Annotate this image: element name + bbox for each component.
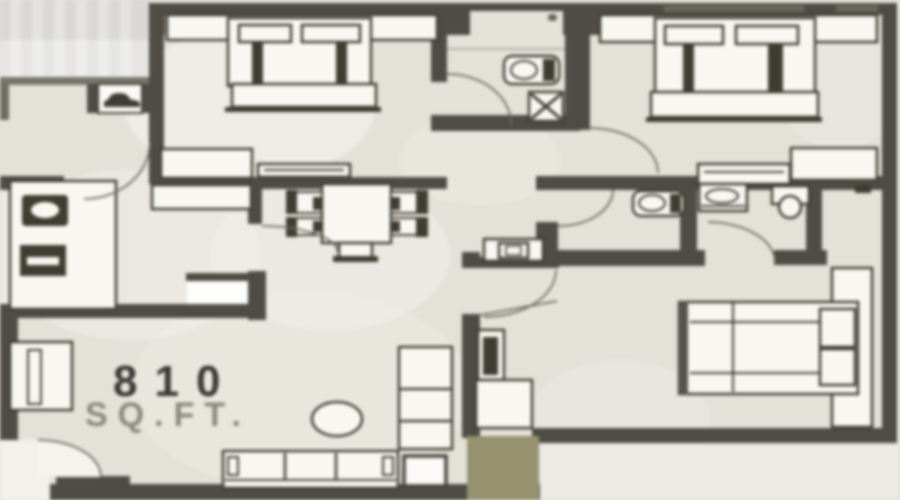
svg-text:SQ.FT.: SQ.FT. bbox=[85, 396, 251, 434]
